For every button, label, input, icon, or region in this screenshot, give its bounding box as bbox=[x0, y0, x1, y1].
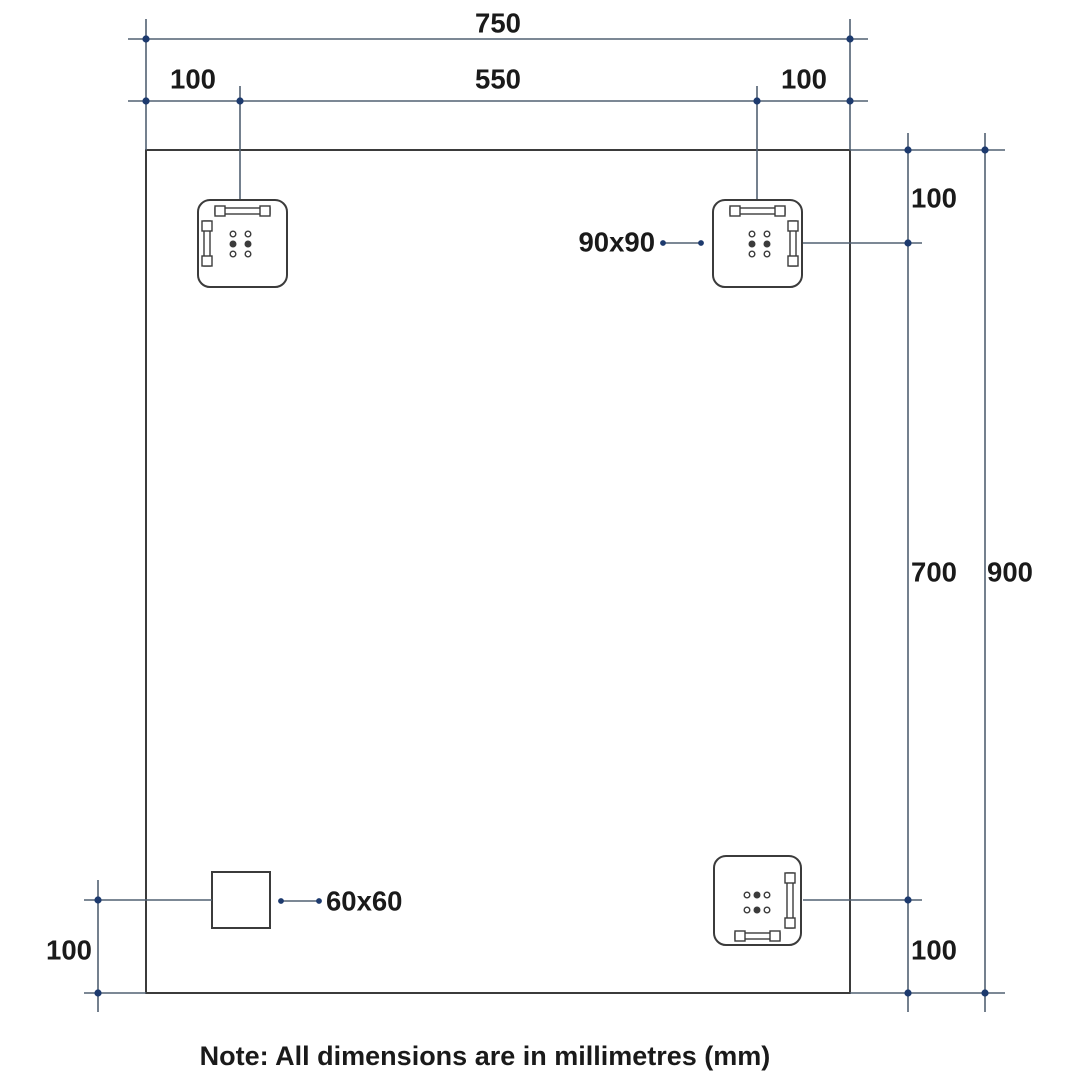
mounting-bracket-bottom-right bbox=[714, 856, 801, 945]
dim-overall-height: 900 bbox=[987, 557, 1033, 588]
dim-top-center-span: 550 bbox=[475, 64, 521, 95]
dim-right-mid-span: 700 bbox=[911, 557, 957, 588]
dim-right-top-offset: 100 bbox=[911, 183, 957, 214]
dim-overall-width: 750 bbox=[475, 8, 521, 39]
dim-top-right-offset: 100 bbox=[781, 64, 827, 95]
square-block-60x60 bbox=[212, 872, 270, 928]
technical-drawing: 750 100 550 100 100 700 900 100 100 90x9… bbox=[0, 0, 1080, 1080]
callout-bracket-size: 90x90 bbox=[579, 227, 655, 258]
mounting-bracket-top-left bbox=[198, 200, 287, 287]
dim-right-bottom-offset: 100 bbox=[911, 935, 957, 966]
dim-top-left-offset: 100 bbox=[170, 64, 216, 95]
callout-square-size: 60x60 bbox=[326, 886, 402, 917]
note-text: Note: All dimensions are in millimetres … bbox=[200, 1041, 771, 1071]
mounting-bracket-top-right bbox=[713, 200, 802, 287]
dim-left-bottom-offset: 100 bbox=[46, 935, 92, 966]
